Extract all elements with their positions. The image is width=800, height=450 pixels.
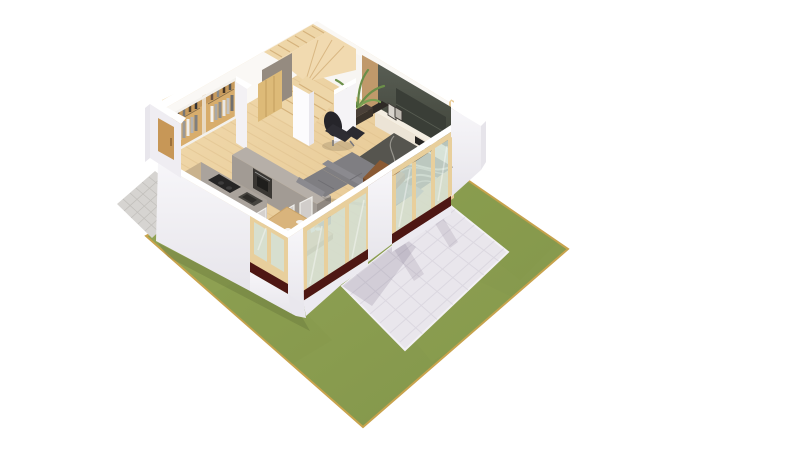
chair-shadow	[322, 141, 354, 151]
burner-1	[218, 181, 224, 185]
sw-window-mullion	[267, 229, 271, 264]
stub-face	[236, 82, 247, 150]
entry-block-side	[145, 104, 150, 162]
burner-2	[226, 186, 232, 190]
stair-newel-wall	[293, 85, 309, 146]
east-wall-side	[481, 121, 486, 170]
stair-newel-side	[309, 91, 314, 146]
floorplan-page	[0, 0, 800, 450]
closet-divider	[202, 94, 206, 135]
floorplan-render	[0, 0, 800, 450]
